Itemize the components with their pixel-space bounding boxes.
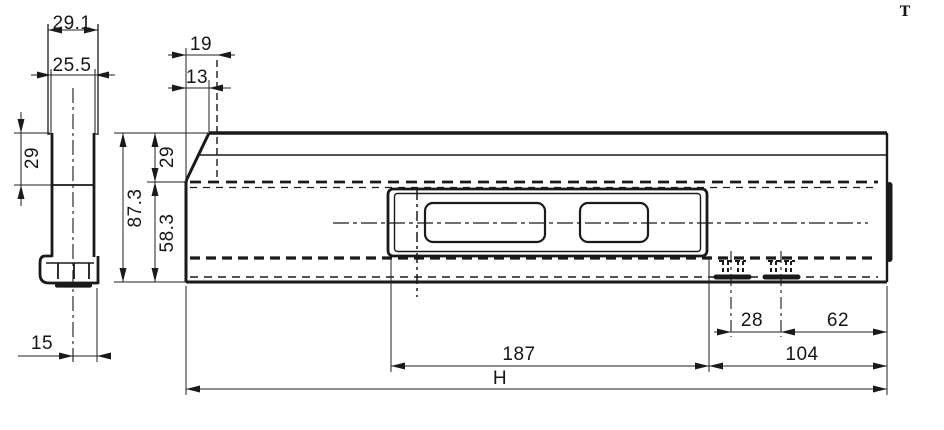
front-view — [186, 60, 890, 337]
front-chamfer — [186, 133, 209, 181]
dim-front-clip-pitch: 28 — [741, 310, 763, 331]
clip-2 — [765, 251, 798, 337]
technical-drawing-canvas: 29.1 25.5 29 15 19 13 29 87.3 58.3 187 H… — [0, 0, 944, 430]
dim-side-height-upper: 29 — [22, 147, 43, 169]
dim-front-total-height: 87.3 — [125, 189, 146, 228]
dim-front-top-offset: 19 — [190, 34, 212, 55]
dim-front-lower-height: 58.3 — [157, 214, 178, 253]
profile-dimension-drawing: 29.1 25.5 29 15 19 13 29 87.3 58.3 187 H… — [0, 0, 944, 430]
pocket-outer — [388, 189, 707, 256]
dim-front-pocket-length: 187 — [502, 344, 535, 365]
dim-front-top-offset-inner: 13 — [186, 67, 208, 88]
dim-front-overall-length: H — [493, 368, 507, 389]
dim-side-width-inner: 25.5 — [53, 55, 92, 76]
page-marker: T — [900, 4, 911, 20]
dim-front-end-zone: 104 — [785, 344, 818, 365]
dim-side-width-top: 29.1 — [53, 13, 92, 34]
dim-front-clip-to-end: 62 — [827, 310, 849, 331]
dim-side-foot-offset: 15 — [31, 333, 53, 354]
side-view-dimensions — [14, 30, 115, 362]
dim-front-upper-height: 29 — [157, 146, 178, 168]
front-view-dimensions — [114, 48, 887, 395]
